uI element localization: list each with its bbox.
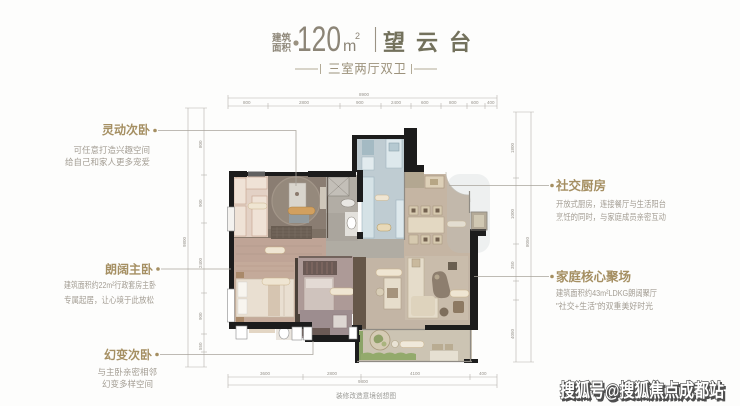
svg-text:与主卧亲密相邻: 与主卧亲密相邻 xyxy=(97,367,157,377)
svg-text:2800: 2800 xyxy=(327,371,338,376)
svg-text:9800: 9800 xyxy=(182,236,187,247)
svg-text:烹饪的同时，与家庭成员亲密互动: 烹饪的同时，与家庭成员亲密互动 xyxy=(556,212,666,222)
svg-text:2400: 2400 xyxy=(391,100,402,105)
svg-text:350: 350 xyxy=(510,261,515,269)
svg-text:400: 400 xyxy=(479,371,487,376)
svg-text:2: 2 xyxy=(355,31,360,41)
svg-text:装修改造意境创想图: 装修改造意境创想图 xyxy=(336,391,396,400)
svg-text:4050: 4050 xyxy=(510,328,515,339)
svg-text:550: 550 xyxy=(198,342,203,350)
svg-text:面积: 面积 xyxy=(272,42,292,54)
svg-text:900: 900 xyxy=(198,312,203,320)
svg-text:幻变次卧: 幻变次卧 xyxy=(104,347,152,362)
svg-text:2800: 2800 xyxy=(299,100,310,105)
svg-text:120: 120 xyxy=(297,20,341,59)
svg-text:600: 600 xyxy=(471,100,479,105)
svg-text:望云台: 望云台 xyxy=(383,30,482,55)
svg-text:搜狐号@搜狐焦点成都站: 搜狐号@搜狐焦点成都站 xyxy=(560,380,724,401)
svg-text:家庭核心聚场: 家庭核心聚场 xyxy=(556,269,631,284)
svg-text:8050: 8050 xyxy=(525,236,530,247)
svg-text:3600: 3600 xyxy=(260,371,271,376)
svg-text:"社交+生活"的双重美好时光: "社交+生活"的双重美好时光 xyxy=(556,301,653,311)
svg-text:800: 800 xyxy=(243,100,251,105)
svg-text:建筑面积约22m²行政套房主卧: 建筑面积约22m²行政套房主卧 xyxy=(64,280,156,290)
svg-text:800: 800 xyxy=(449,100,457,105)
svg-text:专属起居，让心境于此放松: 专属起居，让心境于此放松 xyxy=(64,295,154,305)
svg-text:600: 600 xyxy=(421,100,429,105)
svg-text:社交厨房: 社交厨房 xyxy=(555,178,606,193)
svg-text:800: 800 xyxy=(198,140,203,148)
svg-text:900: 900 xyxy=(356,100,364,105)
svg-text:可任意打造兴趣空间: 可任意打造兴趣空间 xyxy=(73,145,150,155)
svg-text:900: 900 xyxy=(198,199,203,207)
svg-text:8900: 8900 xyxy=(359,92,370,97)
svg-text:1800: 1800 xyxy=(510,142,515,153)
svg-text:开放式厨房，连接餐厅与生活阳台: 开放式厨房，连接餐厅与生活阳台 xyxy=(556,199,666,209)
svg-text:2400: 2400 xyxy=(198,257,203,268)
svg-text:4100: 4100 xyxy=(410,371,421,376)
svg-text:400: 400 xyxy=(487,100,495,105)
svg-text:9800: 9800 xyxy=(358,379,369,384)
svg-text:灵动次卧: 灵动次卧 xyxy=(102,122,150,137)
svg-text:建筑面积约43m²LDKG朗阔聚厅: 建筑面积约43m²LDKG朗阔聚厅 xyxy=(556,288,657,298)
svg-text:朗阔主卧: 朗阔主卧 xyxy=(105,262,153,277)
svg-text:1000: 1000 xyxy=(510,208,515,219)
svg-text:三室两厅双卫: 三室两厅双卫 xyxy=(328,61,407,76)
svg-text:幻变多样空间: 幻变多样空间 xyxy=(102,379,153,389)
svg-text:给自己和家人更多宠爱: 给自己和家人更多宠爱 xyxy=(65,157,150,167)
